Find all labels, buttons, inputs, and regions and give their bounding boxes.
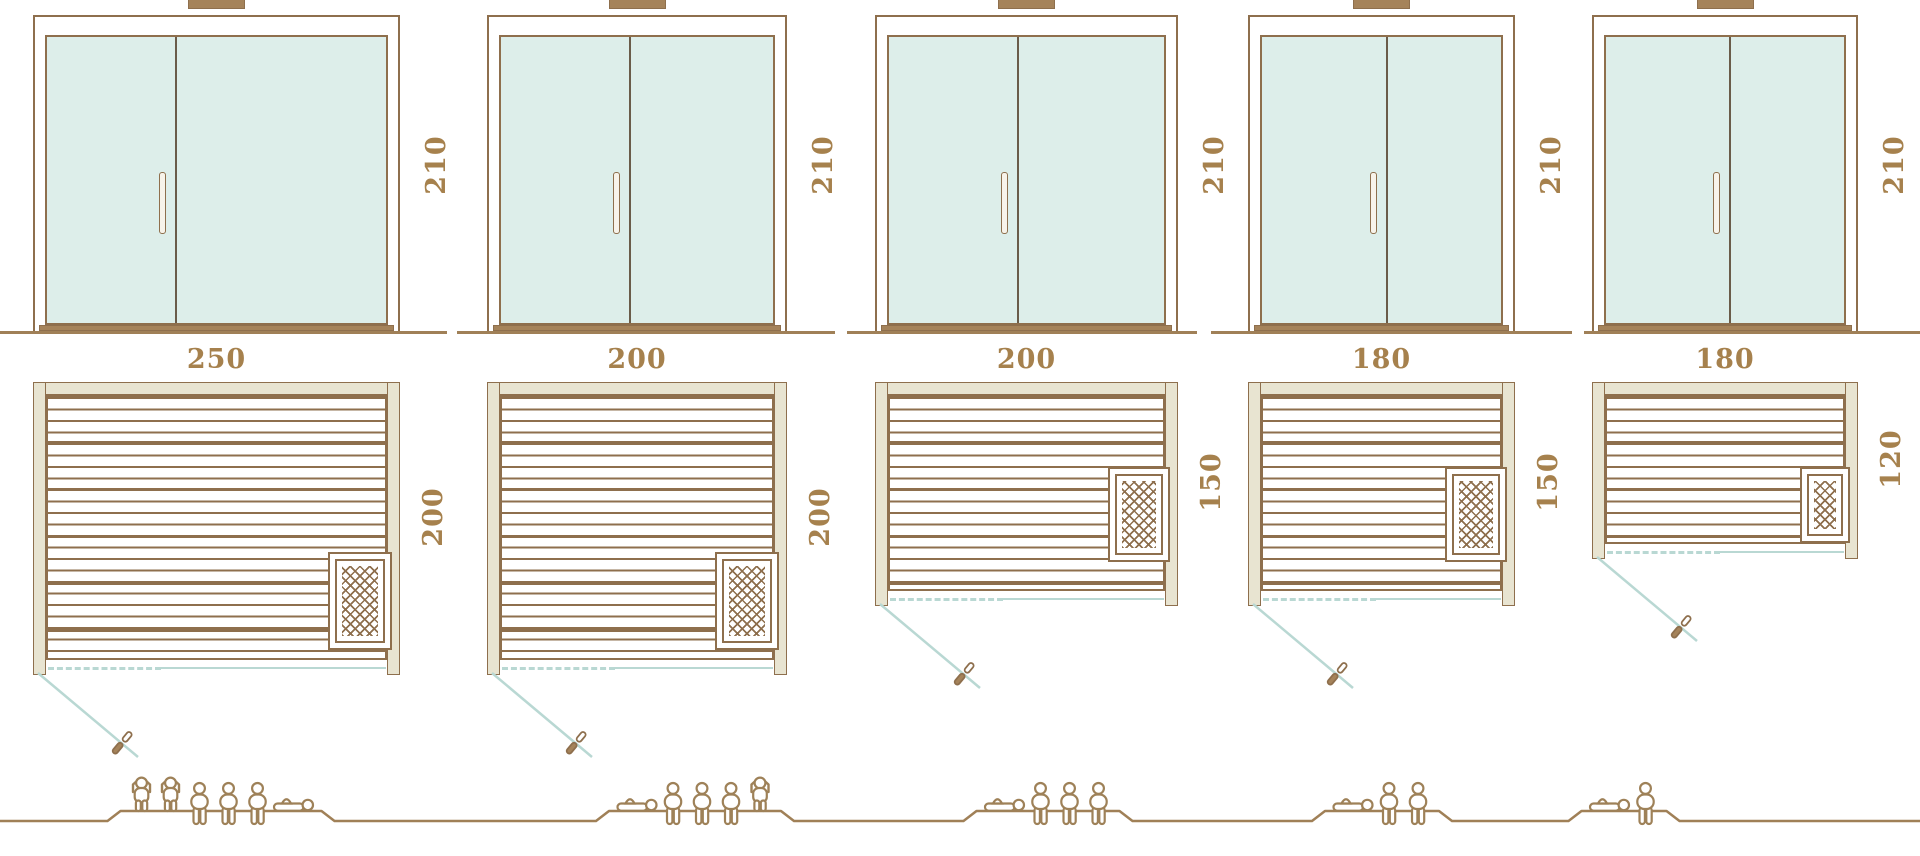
person-sitting-icon: [1061, 783, 1077, 824]
floor-plan: [1592, 382, 1858, 559]
plan-wall-left: [875, 382, 888, 606]
door-opening-line: [615, 667, 773, 669]
person-sitting-icon: [1410, 783, 1426, 824]
door-height-dimension: 210: [1882, 135, 1908, 195]
floor-plan: [875, 382, 1178, 606]
person-sitting-icon: [249, 783, 265, 824]
person-lying-icon: [1334, 799, 1373, 810]
door-opening-line: [1003, 598, 1164, 600]
door-opening-dashed-line: [1607, 551, 1720, 554]
person-sitting-icon: [1032, 783, 1048, 824]
glass-panels: [1604, 35, 1846, 325]
glass-panels: [1260, 35, 1503, 325]
capacity-figures: [985, 783, 1107, 824]
plan-width-dimension: 180: [1352, 347, 1412, 373]
floor-plan: [1248, 382, 1515, 606]
person-sitting-icon: [191, 783, 207, 824]
heater-mesh: [1814, 481, 1836, 529]
plan-wall-top: [33, 382, 400, 395]
person-lying-icon: [618, 799, 657, 810]
heater-frame: [335, 559, 385, 643]
plan-door-handle-icon: [112, 731, 133, 755]
person-lying-icon: [274, 799, 313, 810]
person-lying-icon: [985, 799, 1024, 810]
heater-frame: [1452, 474, 1500, 555]
plan-width-dimension: 200: [997, 347, 1057, 373]
door-opening-line: [1720, 551, 1844, 553]
person-sitting-icon: [220, 783, 236, 824]
plan-wall-left: [1248, 382, 1261, 606]
door-leaf-divider: [629, 37, 631, 323]
plan-wall-left: [33, 382, 46, 675]
person-sitting-icon: [665, 783, 681, 824]
glass-panels: [887, 35, 1166, 325]
door-leaf-divider: [1017, 37, 1019, 323]
glass-panels: [45, 35, 388, 325]
plan-wall-top: [487, 382, 787, 395]
door-handle: [613, 172, 620, 234]
roof-vent: [1353, 0, 1410, 9]
door-handle: [1370, 172, 1377, 234]
person-sitting-icon: [1637, 783, 1653, 824]
door-leaf-divider: [1386, 37, 1388, 323]
capacity-figures: [1590, 783, 1654, 824]
elevation-ground-line: [0, 331, 447, 334]
door-handle: [1713, 172, 1720, 234]
door-elevation: [33, 15, 400, 333]
door-swing-line: [492, 673, 592, 757]
plan-wall-top: [875, 382, 1178, 395]
person-standing-icon: [162, 778, 179, 811]
person-sitting-icon: [1090, 783, 1106, 824]
heater-frame: [722, 559, 772, 643]
plan-wall-left: [1592, 382, 1605, 559]
door-opening-dashed-line: [1263, 598, 1376, 601]
person-sitting-icon: [694, 783, 710, 824]
heater-mesh: [1122, 481, 1156, 548]
capacity-figures: [618, 778, 769, 824]
person-sitting-icon: [1381, 783, 1397, 824]
plan-width-dimension: 200: [607, 347, 667, 373]
heater: [328, 552, 392, 650]
plan-width-dimension: 180: [1695, 347, 1755, 373]
plan-depth-dimension: 200: [808, 487, 834, 547]
person-standing-icon: [752, 778, 769, 811]
roof-vent: [998, 0, 1055, 9]
sauna-size-diagram: 2102502002102002002102001502101801502101…: [0, 0, 1920, 856]
elevation-ground-line: [1584, 331, 1920, 334]
floor-plan: [33, 382, 400, 675]
heater: [715, 552, 779, 650]
heater: [1445, 467, 1507, 562]
door-swing-line: [880, 604, 980, 688]
door-elevation: [1248, 15, 1515, 333]
heater: [1108, 467, 1170, 562]
glass-panels: [499, 35, 775, 325]
door-handle: [1001, 172, 1008, 234]
heater-mesh: [342, 566, 378, 636]
heater-frame: [1115, 474, 1163, 555]
plan-door-handle-icon: [566, 731, 587, 755]
door-height-dimension: 210: [424, 135, 450, 195]
door-leaf-divider: [1729, 37, 1731, 323]
door-opening-dashed-line: [48, 667, 161, 670]
person-sitting-icon: [723, 783, 739, 824]
person-lying-icon: [1590, 799, 1629, 810]
heater-mesh: [729, 566, 765, 636]
plan-door-handle-icon: [954, 662, 975, 686]
roof-vent: [609, 0, 666, 9]
plan-door-handle-icon: [1671, 615, 1692, 639]
heater: [1800, 467, 1850, 543]
door-elevation: [875, 15, 1178, 333]
elevation-ground-line: [847, 331, 1197, 334]
door-height-dimension: 210: [1539, 135, 1565, 195]
elevation-ground-line: [1211, 331, 1572, 334]
capacity-figures: [133, 778, 313, 824]
door-handle: [159, 172, 166, 234]
roof-vent: [188, 0, 245, 9]
capacity-ground-line: [0, 811, 1920, 821]
door-swing-line: [1253, 604, 1353, 688]
door-opening-line: [1376, 598, 1501, 600]
plan-wall-left: [487, 382, 500, 675]
plan-depth-dimension: 120: [1879, 429, 1905, 489]
plan-depth-dimension: 150: [1536, 452, 1562, 512]
door-height-dimension: 210: [1202, 135, 1228, 195]
heater-frame: [1807, 474, 1843, 536]
person-standing-icon: [133, 778, 150, 811]
plan-door-handle-icon: [1327, 662, 1348, 686]
plan-wall-top: [1248, 382, 1515, 395]
capacity-figures: [1334, 783, 1427, 824]
door-height-dimension: 210: [811, 135, 837, 195]
roof-vent: [1697, 0, 1754, 9]
door-opening-line: [161, 667, 386, 669]
plan-depth-dimension: 200: [421, 487, 447, 547]
plan-width-dimension: 250: [187, 347, 247, 373]
door-opening-dashed-line: [890, 598, 1003, 601]
door-leaf-divider: [175, 37, 177, 323]
heater-mesh: [1459, 481, 1493, 548]
door-opening-dashed-line: [502, 667, 615, 670]
door-elevation: [1592, 15, 1858, 333]
door-swing-line: [38, 673, 138, 757]
door-elevation: [487, 15, 787, 333]
door-swing-line: [1597, 557, 1697, 641]
plan-wall-top: [1592, 382, 1858, 395]
plan-depth-dimension: 150: [1199, 452, 1225, 512]
elevation-ground-line: [457, 331, 835, 334]
floor-plan: [487, 382, 787, 675]
